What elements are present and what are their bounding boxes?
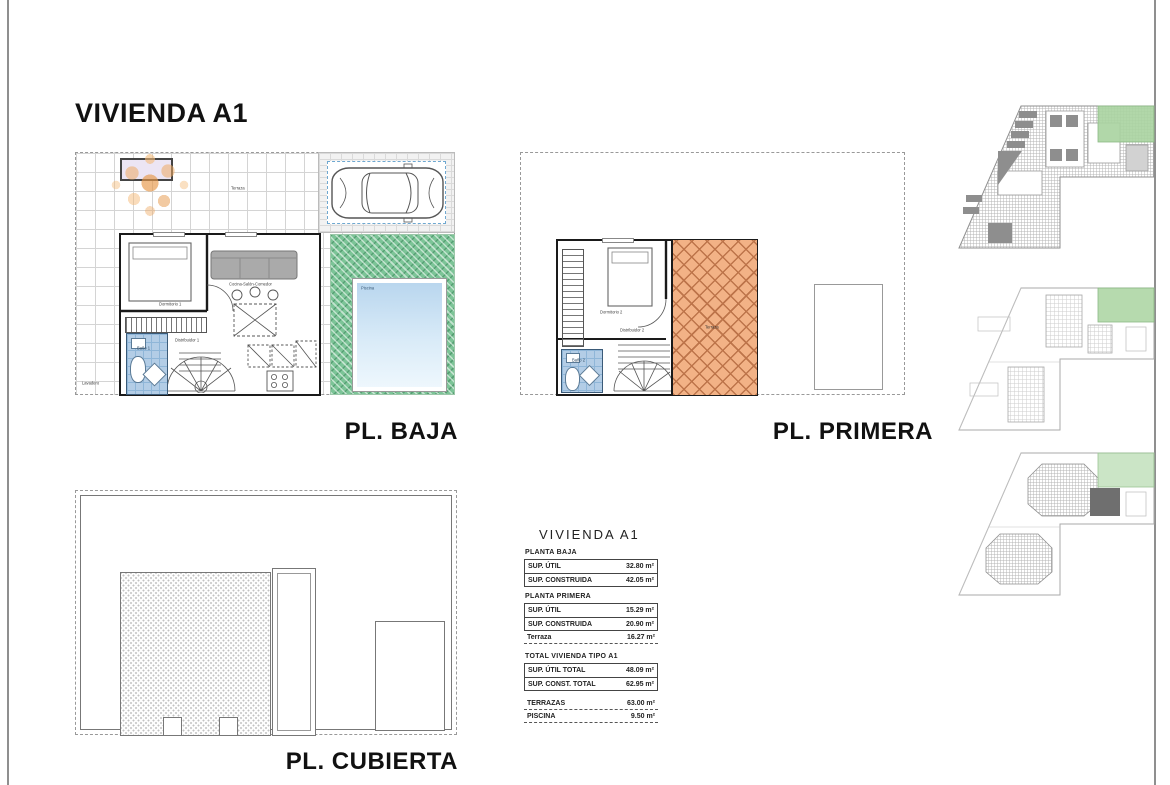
row-label: TERRAZAS (527, 700, 565, 707)
section-box: SUP. ÚTIL 15.29 m² SUP. CONSTRUIDA 20.90… (524, 603, 658, 631)
roof-hatched-area (120, 572, 271, 736)
house-first-floor: Terraza Dormitorio 2 Distribuidor 2 Baño… (556, 239, 758, 396)
parking-area (318, 152, 455, 233)
roof-void-rect (814, 284, 883, 390)
window (602, 238, 634, 243)
row-value: 42.05 m² (626, 577, 654, 584)
section-heading: TOTAL VIVIENDA TIPO A1 (525, 653, 658, 660)
plan-cubierta (75, 490, 457, 735)
drawing-sheet: VIVIENDA A1 Terraza Lavadero (0, 0, 1170, 785)
site-plan-thumbnail-cubierta (958, 452, 1155, 597)
page-title: VIVIENDA A1 (75, 98, 248, 129)
row-value: 62.95 m² (626, 681, 654, 688)
sheet-border-left (7, 0, 9, 785)
table-row: SUP. ÚTIL TOTAL 48.09 m² (525, 664, 657, 677)
roof-outline (80, 495, 452, 730)
room-label-bano1: Baño 1 (137, 347, 150, 352)
room-label-distribuidor2: Distribuidor 2 (620, 329, 644, 334)
row-label: SUP. ÚTIL TOTAL (528, 667, 585, 674)
plan-cubierta-title: PL. CUBIERTA (260, 748, 458, 776)
room-label-salon: Cocina-Salón-Comedor (229, 283, 272, 288)
room-label-terraza: Terraza (231, 187, 245, 192)
room-label-bano2: Baño 2 (572, 359, 585, 364)
shower-door (142, 362, 166, 386)
plan-primera: Terraza Dormitorio 2 Distribuidor 2 Baño… (520, 152, 905, 395)
site-plan-thumbnail-baja (958, 105, 1155, 250)
section-box: SUP. ÚTIL TOTAL 48.09 m² SUP. CONST. TOT… (524, 663, 658, 691)
roof-notch (219, 717, 238, 735)
room-label-terraza-p: Terraza (705, 326, 719, 331)
table-row: TERRAZAS 63.00 m² (524, 697, 658, 710)
pool: Piscina (352, 278, 447, 392)
roof-notch (163, 717, 182, 735)
row-value: 63.00 m² (627, 700, 655, 707)
row-value: 20.90 m² (626, 621, 654, 628)
row-value: 48.09 m² (626, 667, 654, 674)
row-label: SUP. CONSTRUIDA (528, 621, 592, 628)
row-value: 32.80 m² (626, 563, 654, 570)
roof-strip-inner (277, 573, 311, 731)
bathroom-2 (561, 349, 603, 393)
roof-pool-rect (375, 621, 445, 731)
unit-highlight-green (1098, 106, 1154, 142)
wardrobe (562, 249, 584, 347)
house-ground-floor: Dormitorio 1 Cocina-Salón-Comedor Distri… (119, 233, 321, 396)
pool-water: Piscina (357, 283, 442, 387)
summary-title: VIVIENDA A1 (539, 527, 658, 542)
window (225, 232, 257, 237)
table-row: PISCINA 9.50 m² (524, 710, 658, 723)
row-value: 16.27 m² (627, 634, 655, 641)
tree-ornament-icon (104, 145, 199, 230)
plan-baja-title: PL. BAJA (280, 418, 458, 446)
table-row: Terraza 16.27 m² (524, 631, 658, 644)
window (153, 232, 185, 237)
dark-roof-rect (1090, 488, 1120, 516)
section-heading: PLANTA PRIMERA (525, 593, 658, 600)
car-top-view-icon (328, 162, 447, 224)
section-box: SUP. ÚTIL 32.80 m² SUP. CONSTRUIDA 42.05… (524, 559, 658, 587)
area-summary-table: VIVIENDA A1 PLANTA BAJA SUP. ÚTIL 32.80 … (524, 527, 658, 723)
table-row: SUP. ÚTIL 15.29 m² (525, 604, 657, 617)
garden-area: Piscina (330, 234, 455, 395)
room-label-dormitorio2: Dormitorio 2 (600, 311, 622, 316)
room-label-distribuidor1: Distribuidor 1 (175, 339, 199, 344)
terrace-first-floor: Terraza (671, 240, 757, 395)
table-row: SUP. ÚTIL 32.80 m² (525, 560, 657, 573)
row-label: Terraza (527, 634, 551, 641)
table-row: SUP. CONSTRUIDA 42.05 m² (525, 573, 657, 586)
row-value: 9.50 m² (631, 713, 655, 720)
row-value: 15.29 m² (626, 607, 654, 614)
room-label-dormitorio1: Dormitorio 1 (159, 303, 181, 308)
toilet (130, 356, 146, 383)
row-label: SUP. ÚTIL (528, 607, 561, 614)
plan-baja: Terraza Lavadero Piscin (75, 152, 455, 395)
plan-primera-title: PL. PRIMERA (733, 418, 933, 446)
shower-door (579, 365, 600, 386)
bathroom-1 (126, 333, 168, 395)
section-heading: PLANTA BAJA (525, 549, 658, 556)
row-label: SUP. CONST. TOTAL (528, 681, 596, 688)
parking-space-outline (327, 161, 446, 224)
table-row: SUP. CONSTRUIDA 20.90 m² (525, 617, 657, 630)
toilet (565, 367, 580, 391)
site-plan-thumbnail-primera (958, 287, 1155, 432)
row-label: SUP. ÚTIL (528, 563, 561, 570)
row-label: SUP. CONSTRUIDA (528, 577, 592, 584)
table-row: SUP. CONST. TOTAL 62.95 m² (525, 677, 657, 690)
roof-strip (272, 568, 316, 736)
room-label-lavadero: Lavadero (82, 382, 99, 387)
row-label: PISCINA (527, 713, 555, 720)
wardrobe (125, 317, 207, 333)
unit-highlight-green (1098, 453, 1154, 487)
unit-highlight-green (1098, 288, 1154, 322)
room-label-piscina: Piscina (361, 287, 374, 292)
